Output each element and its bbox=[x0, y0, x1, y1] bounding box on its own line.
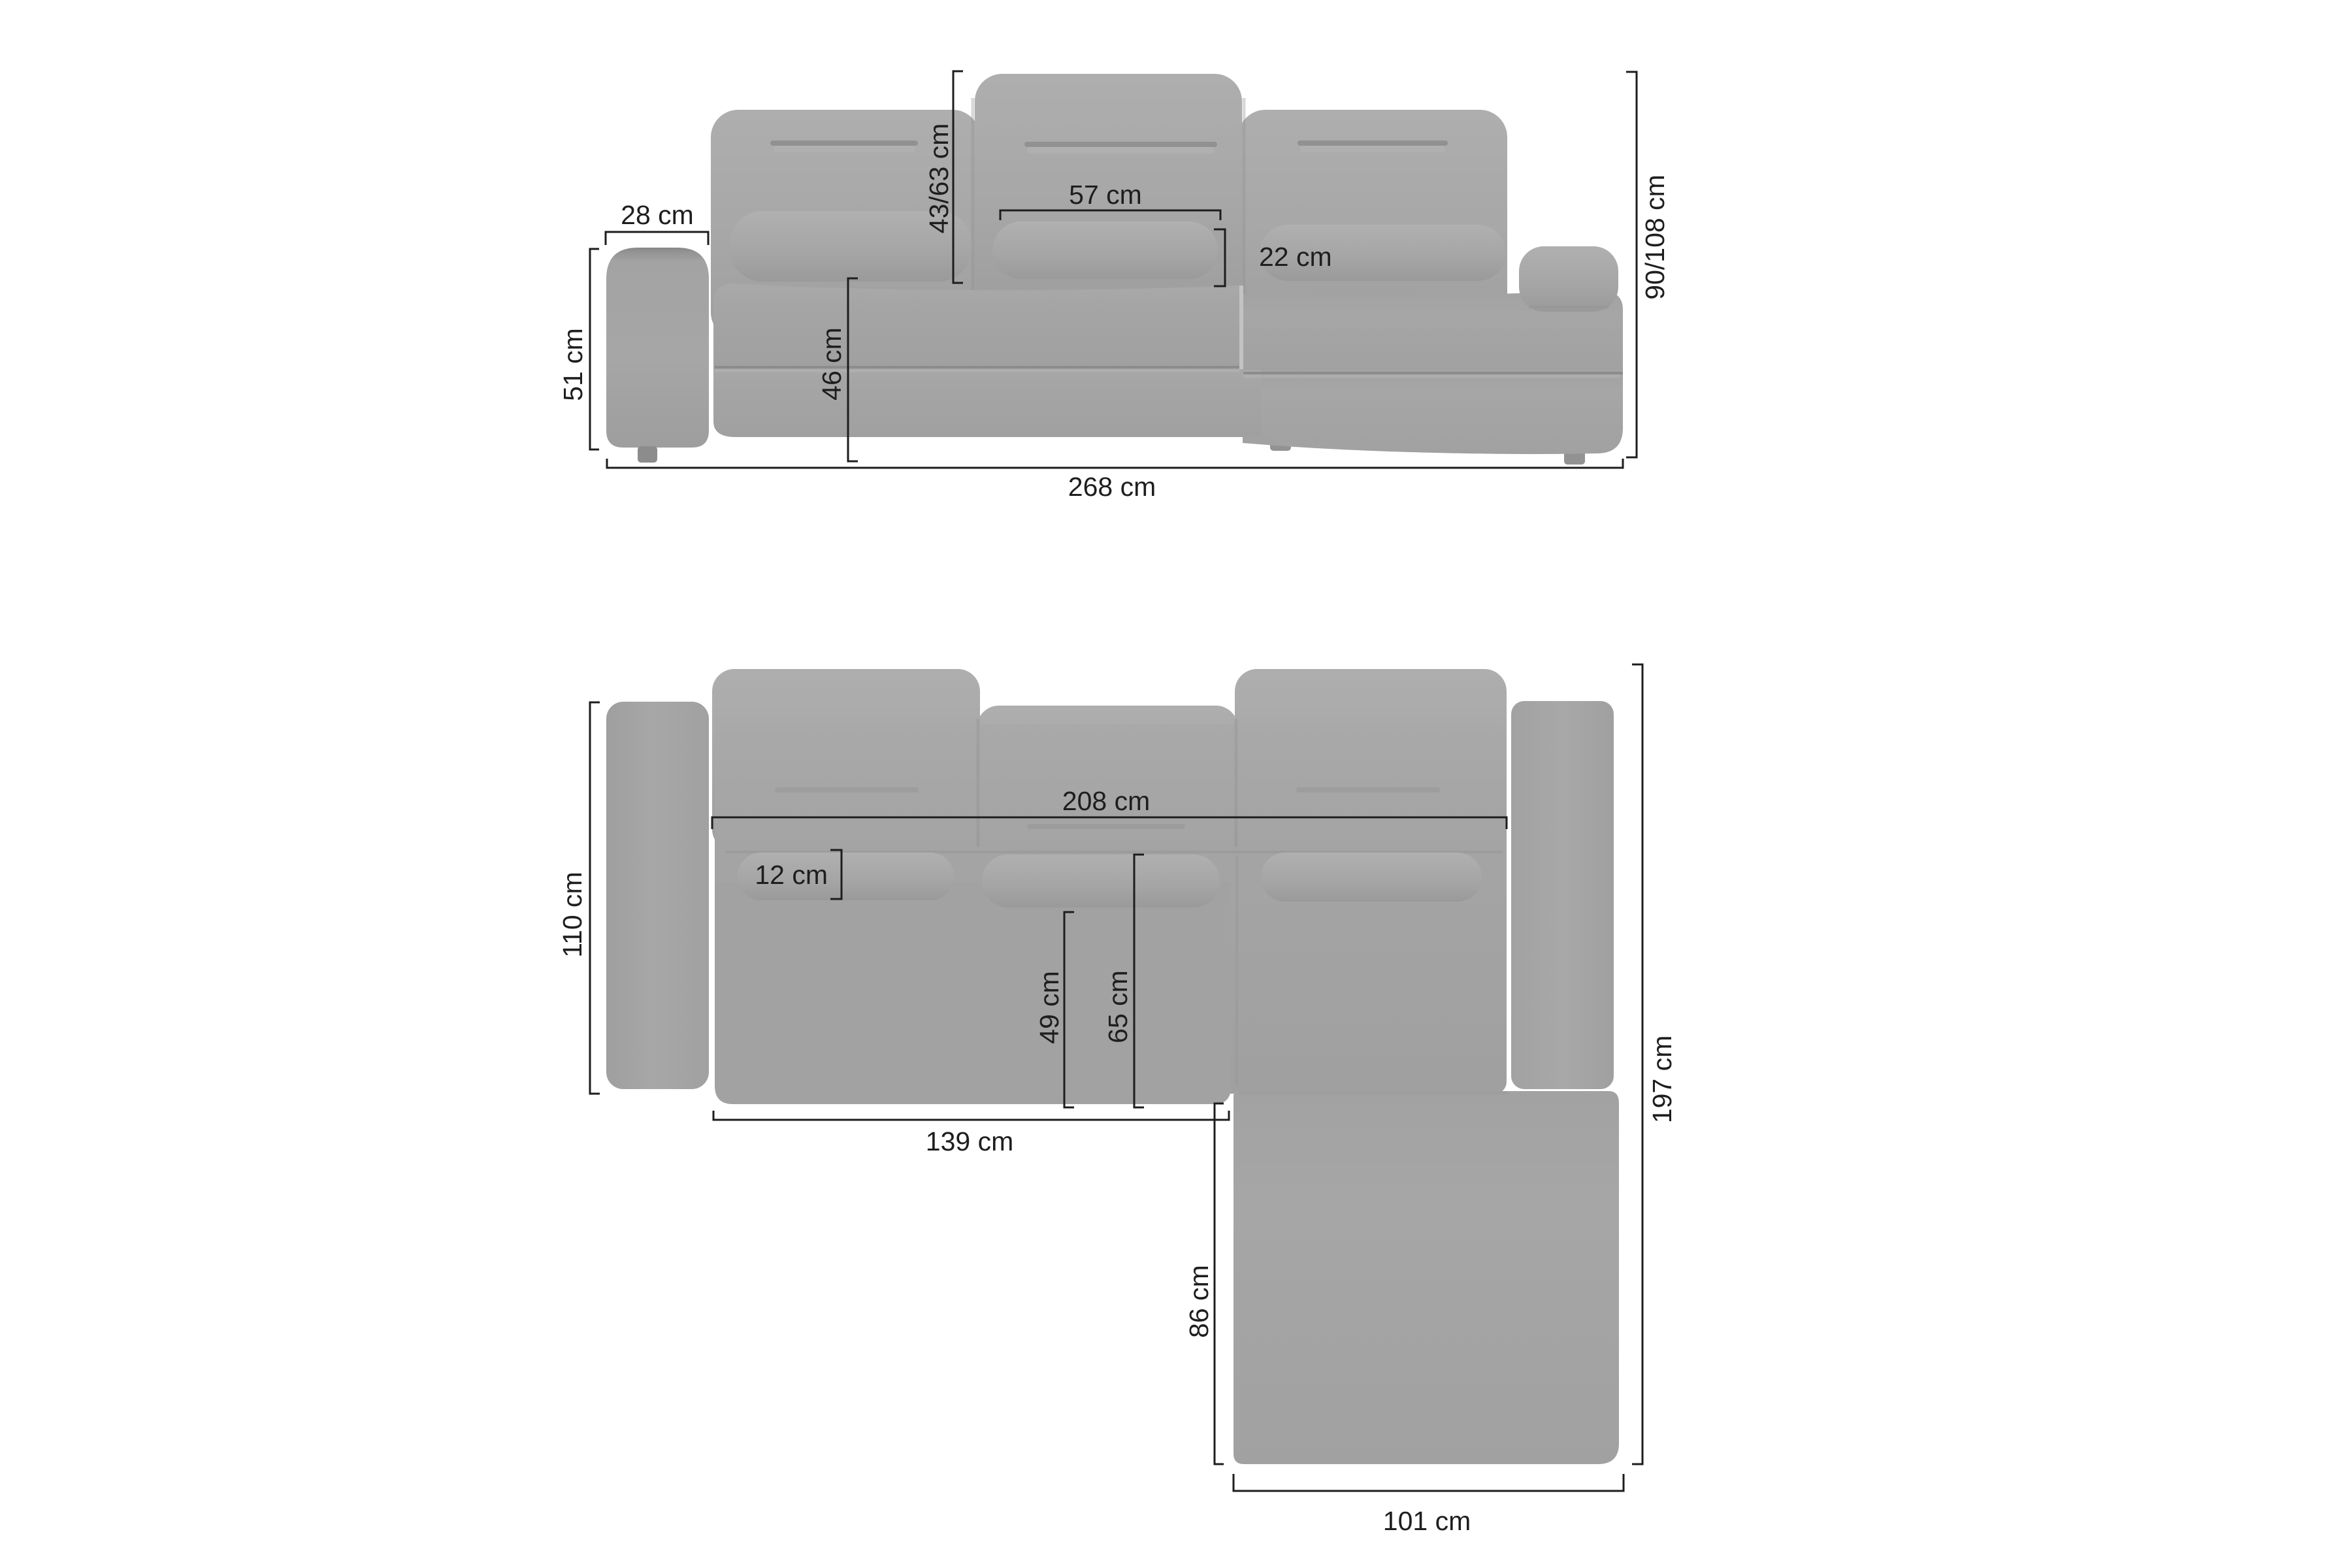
svg-text:197 cm: 197 cm bbox=[1647, 1036, 1677, 1123]
svg-text:90/108 cm: 90/108 cm bbox=[1640, 174, 1670, 299]
svg-text:46 cm: 46 cm bbox=[817, 327, 847, 400]
svg-text:43/63 cm: 43/63 cm bbox=[924, 123, 954, 234]
svg-text:49 cm: 49 cm bbox=[1034, 971, 1064, 1044]
svg-text:28 cm: 28 cm bbox=[621, 200, 694, 230]
svg-text:208 cm: 208 cm bbox=[1062, 786, 1150, 816]
svg-text:22 cm: 22 cm bbox=[1259, 242, 1332, 272]
svg-text:86 cm: 86 cm bbox=[1184, 1265, 1214, 1338]
svg-text:110 cm: 110 cm bbox=[557, 872, 587, 957]
svg-text:139 cm: 139 cm bbox=[926, 1126, 1013, 1156]
svg-text:65 cm: 65 cm bbox=[1103, 970, 1133, 1043]
svg-text:268 cm: 268 cm bbox=[1068, 472, 1156, 502]
svg-text:57 cm: 57 cm bbox=[1069, 180, 1142, 210]
svg-text:12 cm: 12 cm bbox=[755, 860, 828, 890]
svg-text:51 cm: 51 cm bbox=[558, 328, 588, 401]
svg-text:101 cm: 101 cm bbox=[1383, 1506, 1471, 1536]
